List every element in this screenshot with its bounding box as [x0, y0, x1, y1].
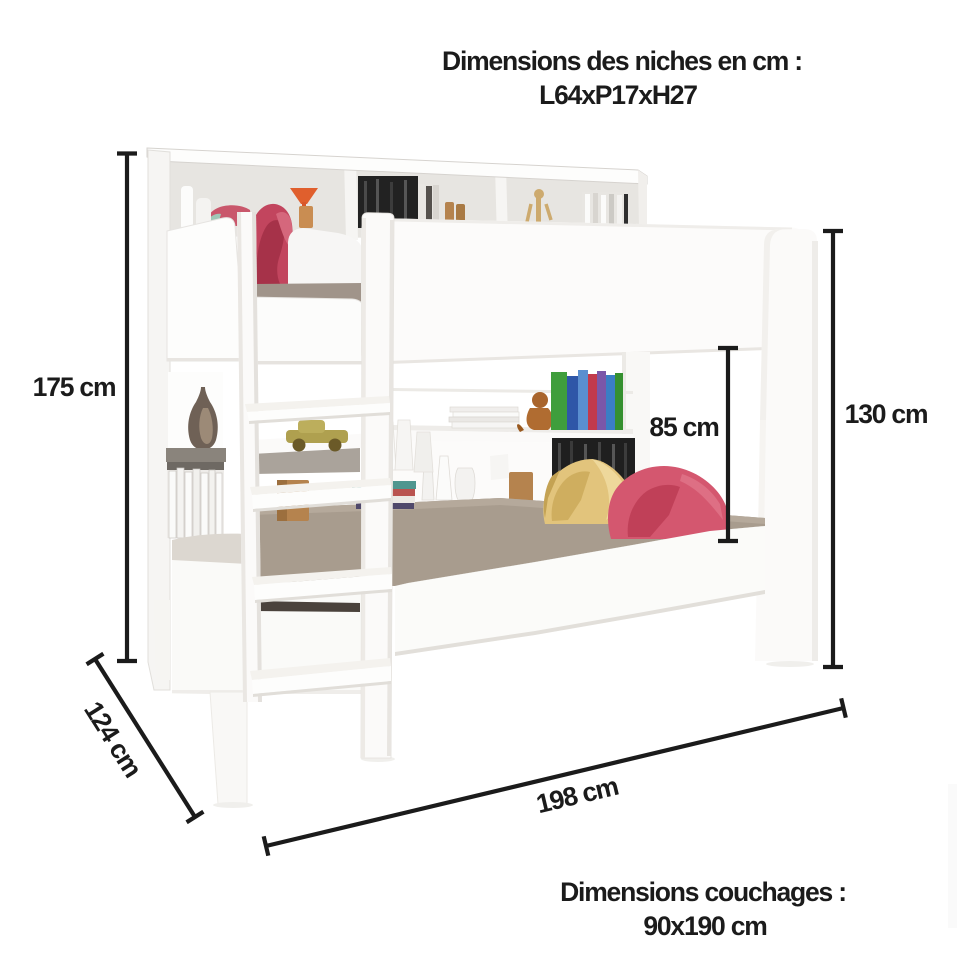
svg-text:175 cm: 175 cm — [33, 372, 116, 402]
svg-text:Dimensions des niches en cm :: Dimensions des niches en cm : — [442, 46, 802, 76]
svg-text:85 cm: 85 cm — [649, 412, 718, 442]
svg-text:90x190 cm: 90x190 cm — [643, 911, 766, 941]
svg-text:Dimensions couchages :: Dimensions couchages : — [560, 877, 846, 907]
svg-text:L64xP17xH27: L64xP17xH27 — [539, 80, 697, 110]
svg-text:130 cm: 130 cm — [845, 399, 928, 429]
